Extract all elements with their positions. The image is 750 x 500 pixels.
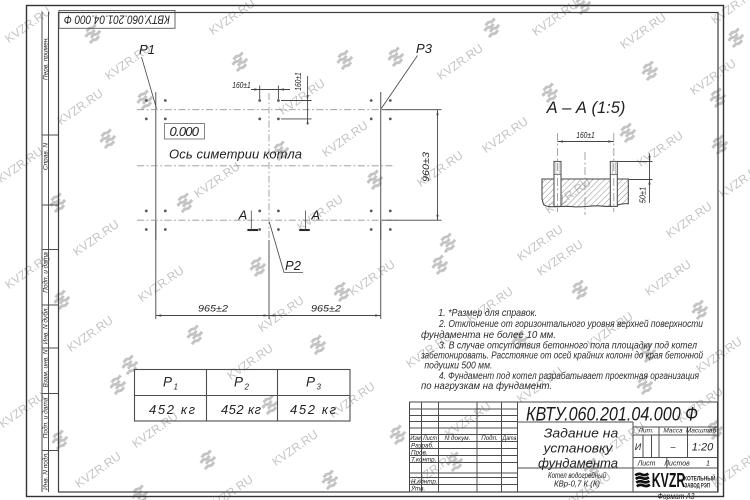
svg-text:Н.контр.: Н.контр. [411, 478, 438, 485]
svg-text:И: И [635, 442, 642, 452]
svg-text:Справ. N: Справ. N [43, 143, 50, 171]
svg-text:N докум.: N докум. [445, 434, 471, 442]
svg-text:Утв.: Утв. [410, 485, 425, 492]
svg-text:А: А [238, 207, 248, 222]
svg-text:Листов: Листов [663, 461, 690, 468]
svg-text:Лист: Лист [636, 461, 655, 468]
svg-text:ЗАВОД РЭП: ЗАВОД РЭП [685, 483, 711, 490]
svg-text:0.000: 0.000 [170, 124, 200, 139]
svg-text:Т.контр.: Т.контр. [411, 456, 436, 463]
svg-text:КОТЕЛЬНЫЙ: КОТЕЛЬНЫЙ [684, 474, 716, 483]
svg-text:1:20: 1:20 [692, 442, 714, 454]
svg-text:Дата: Дата [502, 435, 517, 442]
svg-text:Подп. и дата: Подп. и дата [42, 397, 50, 438]
svg-text:фундамента не более 10 мм.: фундамента не более 10 мм. [421, 329, 556, 341]
svg-text:160±1: 160±1 [576, 131, 595, 140]
svg-text:Подп. и дата: Подп. и дата [42, 252, 50, 293]
svg-text:Взам. инв. N: Взам. инв. N [43, 349, 50, 387]
svg-text:Масштаб: Масштаб [686, 427, 717, 435]
svg-text:Инв. N дубл.: Инв. N дубл. [42, 306, 50, 344]
svg-text:Перв. примен.: Перв. примен. [43, 37, 50, 80]
svg-text:Пров.: Пров. [411, 449, 428, 456]
svg-text:фундамента: фундамента [538, 456, 618, 471]
svg-text:960±3: 960±3 [421, 151, 432, 182]
svg-text:Ось симетрии котла: Ось симетрии котла [169, 147, 302, 162]
svg-text:2. Отклонение от горизонтально: 2. Отклонение от горизонтального уровня … [438, 319, 703, 330]
svg-text:50±1: 50±1 [639, 187, 648, 204]
svg-text:подушки 500 мм.: подушки 500 мм. [424, 360, 492, 371]
svg-text:KVZR: KVZR [652, 469, 685, 492]
svg-text:Инв. N подл.: Инв. N подл. [42, 452, 50, 490]
svg-text:452 кг: 452 кг [149, 402, 196, 417]
svg-text:1: 1 [706, 461, 710, 468]
svg-text:Формат А3: Формат А3 [658, 491, 695, 500]
svg-text:P1: P1 [139, 42, 155, 57]
svg-text:P3: P3 [416, 41, 433, 56]
svg-text:160±1: 160±1 [232, 81, 251, 90]
svg-text:КВр-0,7 К (К): КВр-0,7 К (К) [554, 479, 600, 489]
svg-text:Разраб.: Разраб. [411, 441, 434, 449]
svg-text:Подп.: Подп. [481, 434, 498, 442]
svg-text:установку: установку [542, 441, 614, 456]
svg-text:Изм: Изм [410, 435, 421, 442]
svg-text:Задание на: Задание на [544, 426, 619, 441]
svg-text:160±1: 160±1 [294, 72, 303, 91]
svg-text:КВТУ.060.201.04.000 Ф: КВТУ.060.201.04.000 Ф [64, 12, 170, 24]
svg-text:Лит.: Лит. [637, 428, 653, 435]
svg-text:КВТУ.060.201.04.000 Ф: КВТУ.060.201.04.000 Ф [526, 404, 698, 425]
svg-text:Лист: Лист [422, 435, 437, 442]
svg-text:А – А (1:5): А – А (1:5) [546, 99, 626, 117]
svg-text:452 кг: 452 кг [290, 402, 337, 417]
svg-text:1. *Размер для справок.: 1. *Размер для справок. [438, 308, 537, 319]
svg-text:А: А [310, 207, 320, 222]
svg-text:P2: P2 [285, 258, 302, 273]
svg-text:по нагрузкам на фундамент.: по нагрузкам на фундамент. [421, 380, 552, 392]
svg-text:965±2: 965±2 [311, 304, 342, 315]
svg-text:965±2: 965±2 [198, 304, 229, 315]
svg-text:Масса: Масса [663, 428, 683, 435]
svg-text:452 кг: 452 кг [221, 402, 262, 417]
svg-text:–: – [669, 442, 676, 452]
